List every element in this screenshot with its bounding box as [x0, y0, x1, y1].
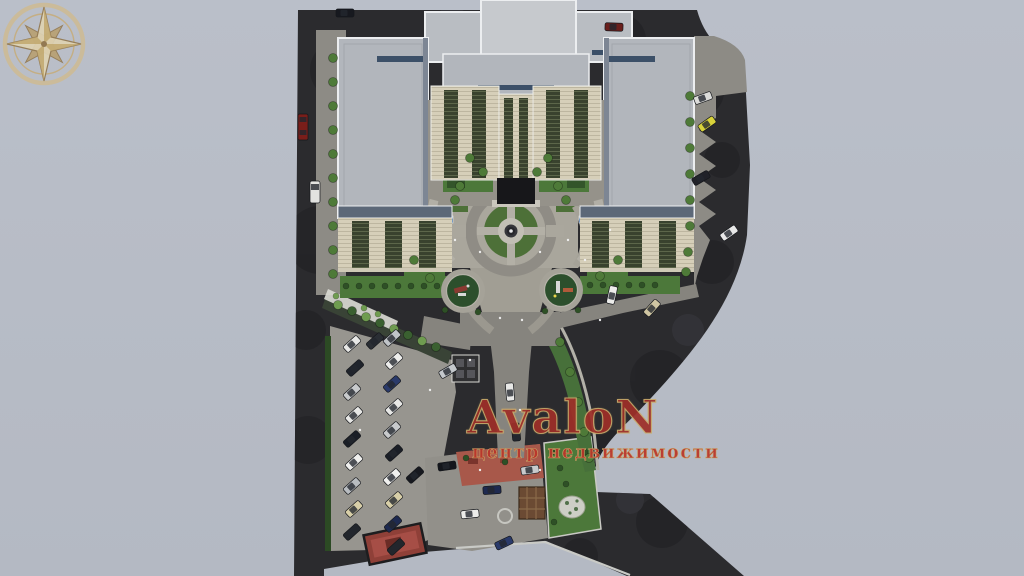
central-entrance	[497, 178, 535, 204]
tower-facade-left	[431, 86, 499, 180]
parking-hedge	[325, 336, 331, 551]
site-plan-render: AvaloN центр недвижимости	[0, 0, 1024, 576]
right-wing-roof	[604, 38, 694, 218]
aerial-site-plan	[0, 0, 1024, 576]
tower-facade-right	[533, 86, 601, 180]
pergola	[519, 487, 545, 519]
stone-mosaic	[559, 496, 585, 518]
left-wing-roof	[338, 38, 428, 218]
